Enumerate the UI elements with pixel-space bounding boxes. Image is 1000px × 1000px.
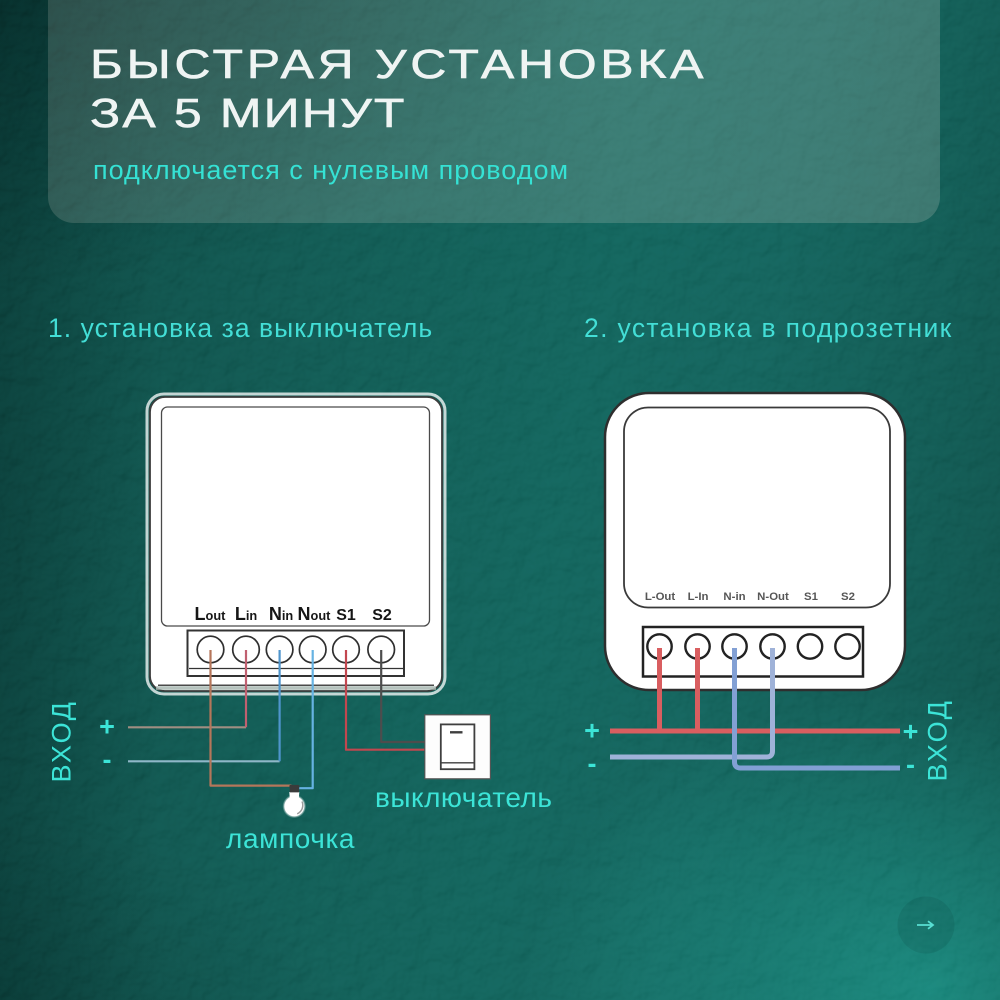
svg-text:S2: S2 bbox=[372, 607, 392, 624]
svg-text:N-in: N-in bbox=[723, 591, 745, 603]
svg-text:S1: S1 bbox=[336, 607, 356, 624]
svg-text:S1: S1 bbox=[804, 591, 819, 603]
svg-text:L-In: L-In bbox=[688, 591, 709, 603]
svg-text:S2: S2 bbox=[841, 591, 855, 603]
svg-text:L-Out: L-Out bbox=[645, 591, 676, 603]
svg-text:N-Out: N-Out bbox=[757, 591, 789, 603]
